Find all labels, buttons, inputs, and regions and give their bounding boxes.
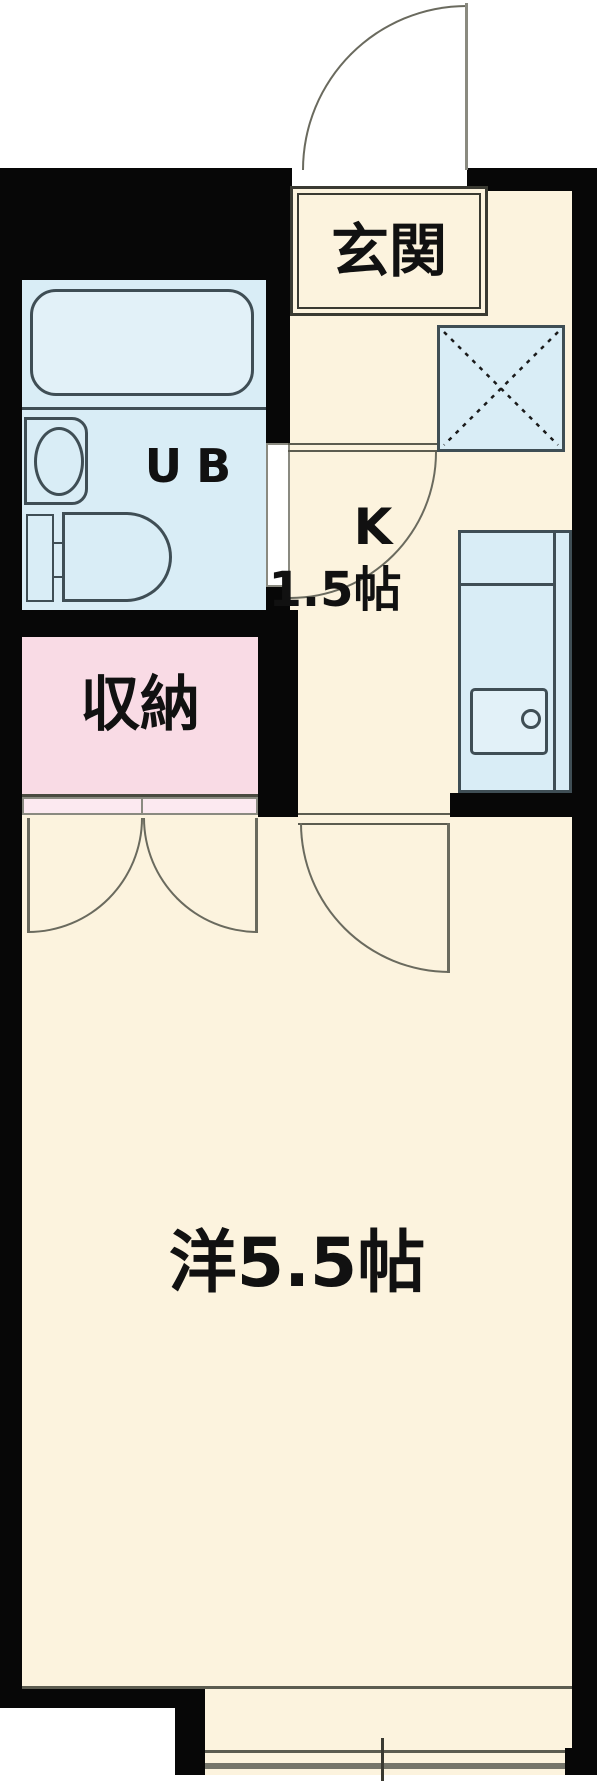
closet-label: 収納 (22, 655, 258, 755)
washbasin-bowl (34, 427, 84, 496)
genkan-label: 玄関 (293, 189, 485, 313)
closet-area: 収納 (22, 637, 258, 797)
counter-divider-vertical (553, 533, 556, 790)
kitchen-size-label: 1.5帖 (240, 560, 430, 620)
closet-door-strip-divider (141, 799, 143, 813)
window-center-mullion (381, 1738, 384, 1781)
kitchen-sink (470, 688, 548, 755)
wall-right (572, 170, 597, 1775)
main-room-label: 洋5.5帖 (22, 1216, 572, 1311)
kitchen-doorway-header (288, 443, 437, 452)
floor-plan: 玄関 UB K 1.5帖 収納 洋5.5帖 (0, 0, 600, 1781)
wall-closet-right (258, 637, 298, 817)
toilet-bowl (62, 512, 172, 602)
genkan-area: 玄関 (290, 186, 488, 316)
kitchen-type-label: K (338, 498, 408, 556)
wall-bottom-right-block (565, 1748, 597, 1775)
kitchen-counter (458, 530, 572, 793)
entrance-door-leaf (465, 3, 468, 170)
sink-drain-circle (521, 709, 541, 729)
x-cross-icon (440, 328, 562, 449)
ub-divider-line (22, 407, 266, 410)
wall-left (0, 168, 22, 1708)
window-outer-sill (205, 1763, 565, 1769)
window-bay-top-line (22, 1686, 572, 1689)
wall-top-left-block (0, 168, 292, 280)
counter-divider-horizontal (461, 583, 553, 586)
entrance-door-arc (302, 5, 467, 170)
wall-bottom-left-stub (175, 1688, 205, 1775)
wall-ub-kitchen-upper (266, 280, 290, 443)
wall-kitchen-bottom (450, 793, 572, 817)
refrigerator-space (437, 325, 565, 452)
window-inner-line (205, 1750, 565, 1753)
ub-label: UB (118, 438, 258, 493)
outside-bottom-left (0, 1708, 175, 1781)
bathtub (30, 289, 254, 396)
toilet-tank (26, 514, 54, 602)
closet-door-strip (22, 797, 258, 815)
